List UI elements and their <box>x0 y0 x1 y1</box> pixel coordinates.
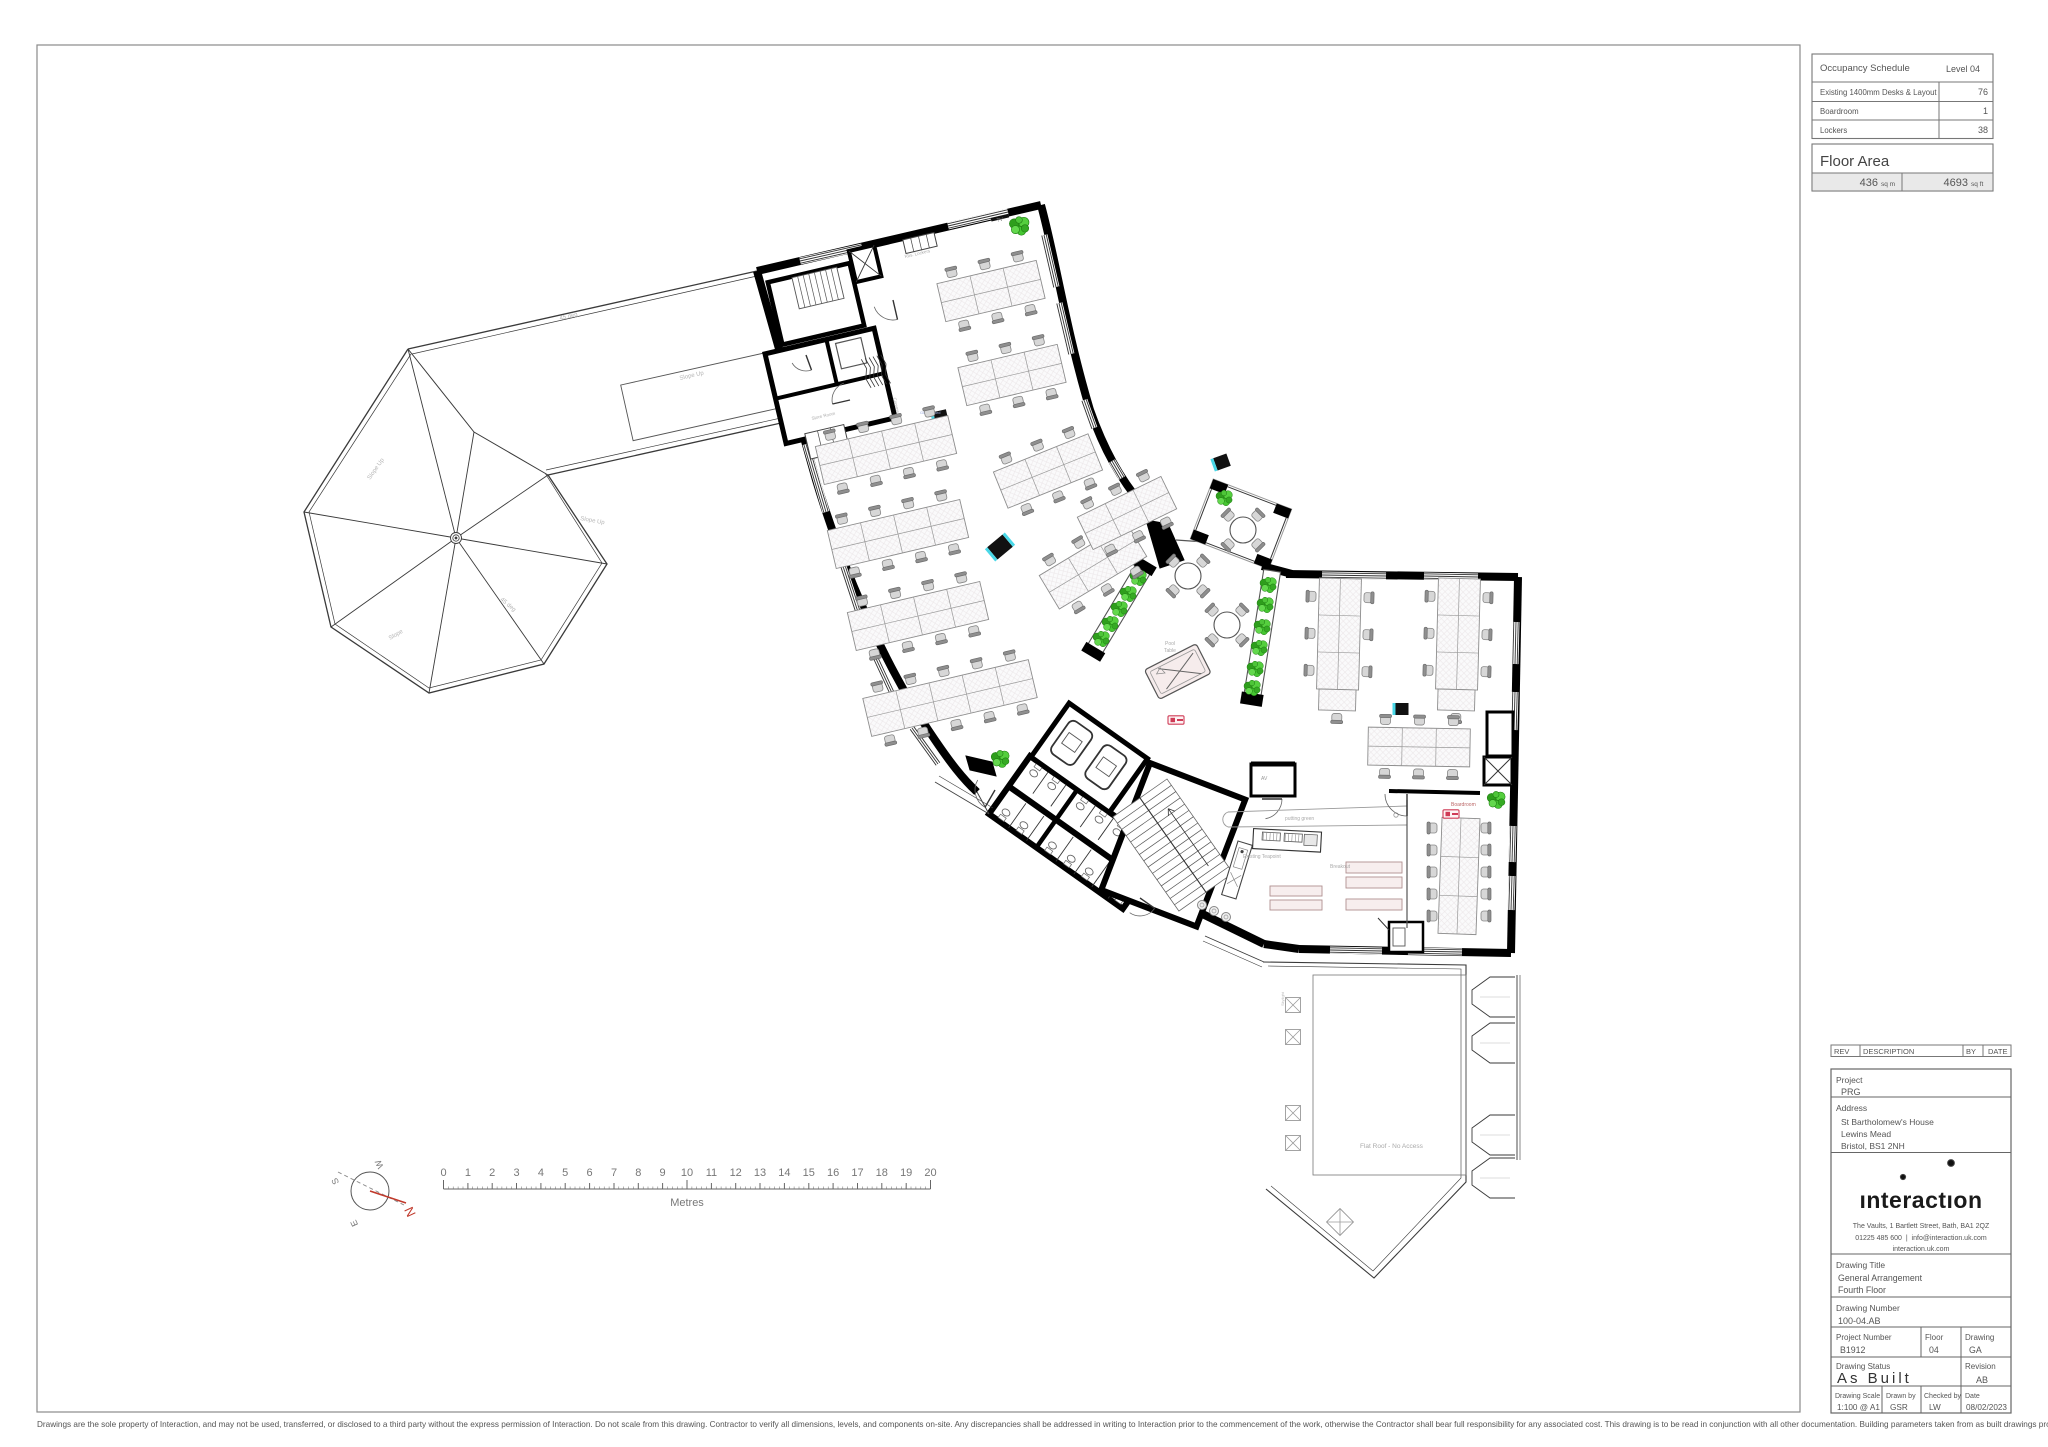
svg-text:sq m: sq m <box>1881 181 1895 188</box>
svg-text:ınteractıon: ınteractıon <box>1859 1187 1982 1213</box>
svg-text:01225 485 600 | info@interac: 01225 485 600 | info@interaction.uk.com <box>1855 1235 1987 1242</box>
svg-text:Table: Table <box>1164 648 1176 654</box>
svg-text:18: 18 <box>876 1167 888 1179</box>
svg-text:Project: Project <box>1836 1075 1863 1085</box>
svg-text:4: 4 <box>538 1167 544 1179</box>
svg-text:The Vaults, 1 Bartlett Street,: The Vaults, 1 Bartlett Street, Bath, BA1… <box>1853 1223 1990 1230</box>
svg-text:9: 9 <box>660 1167 666 1179</box>
svg-text:Occupancy Schedule: Occupancy Schedule <box>1820 63 1910 74</box>
svg-text:General Arrangement: General Arrangement <box>1838 1273 1923 1283</box>
svg-text:17: 17 <box>851 1167 863 1179</box>
svg-text:0: 0 <box>440 1167 446 1179</box>
svg-text:Date: Date <box>1965 1393 1980 1400</box>
svg-text:436: 436 <box>1860 177 1878 189</box>
svg-text:Drawings are the sole property: Drawings are the sole property of Intera… <box>37 1420 2048 1429</box>
svg-text:sq ft: sq ft <box>1971 181 1983 188</box>
svg-text:As Built: As Built <box>1837 1370 1912 1387</box>
svg-text:15: 15 <box>803 1167 815 1179</box>
svg-text:Level 04: Level 04 <box>1946 64 1980 74</box>
svg-text:38: 38 <box>1978 125 1988 135</box>
svg-text:08/02/2023: 08/02/2023 <box>1966 1403 2007 1412</box>
svg-text:Breakout: Breakout <box>1330 864 1351 870</box>
svg-text:Revision: Revision <box>1965 1362 1996 1371</box>
svg-text:Floor: Floor <box>1925 1333 1944 1342</box>
svg-text:Drawing Number: Drawing Number <box>1836 1303 1900 1313</box>
svg-text:13: 13 <box>754 1167 766 1179</box>
svg-text:11: 11 <box>706 1167 717 1179</box>
svg-text:Floor Area: Floor Area <box>1820 153 1890 170</box>
svg-text:6: 6 <box>587 1167 593 1179</box>
svg-text:3: 3 <box>513 1167 519 1179</box>
svg-text:GSR: GSR <box>1890 1403 1908 1412</box>
svg-text:12: 12 <box>730 1167 742 1179</box>
svg-text:Drawing Scale: Drawing Scale <box>1835 1393 1880 1400</box>
svg-text:04: 04 <box>1929 1345 1939 1355</box>
svg-text:GA: GA <box>1969 1345 1982 1355</box>
svg-text:LW: LW <box>1929 1403 1941 1412</box>
svg-text:Boardroom: Boardroom <box>1451 802 1476 808</box>
svg-text:PRG: PRG <box>1841 1087 1861 1097</box>
svg-text:putting green: putting green <box>1285 816 1314 822</box>
svg-text:4693: 4693 <box>1944 177 1968 189</box>
svg-text:AB: AB <box>1976 1375 1988 1385</box>
svg-text:Checked by: Checked by <box>1924 1393 1961 1400</box>
svg-text:Pool: Pool <box>1165 641 1175 647</box>
svg-text:1: 1 <box>465 1167 471 1179</box>
svg-text:Lockers: Lockers <box>1820 126 1847 135</box>
svg-text:16: 16 <box>827 1167 839 1179</box>
svg-text:8: 8 <box>635 1167 641 1179</box>
svg-text:14: 14 <box>778 1167 790 1179</box>
svg-text:Drawn by: Drawn by <box>1886 1393 1916 1400</box>
svg-text:Metres: Metres <box>670 1197 704 1209</box>
svg-text:Lewins Mead: Lewins Mead <box>1841 1129 1891 1139</box>
svg-text:interaction.uk.com: interaction.uk.com <box>1893 1246 1950 1253</box>
svg-text:DESCRIPTION: DESCRIPTION <box>1863 1047 1914 1056</box>
svg-text:BY: BY <box>1966 1047 1976 1056</box>
svg-text:2: 2 <box>489 1167 495 1179</box>
svg-text:Fourth Floor: Fourth Floor <box>1838 1285 1886 1295</box>
svg-text:Existing Teapoint: Existing Teapoint <box>1243 854 1281 860</box>
svg-text:Drawing Title: Drawing Title <box>1836 1260 1885 1270</box>
svg-text:REV: REV <box>1834 1047 1849 1056</box>
svg-text:5: 5 <box>562 1167 568 1179</box>
svg-text:7: 7 <box>611 1167 617 1179</box>
svg-text:Address: Address <box>1836 1103 1867 1113</box>
svg-text:Bristol, BS1 2NH: Bristol, BS1 2NH <box>1841 1141 1905 1151</box>
svg-text:Boardroom: Boardroom <box>1820 107 1859 116</box>
svg-text:Flat Roof - No Access: Flat Roof - No Access <box>1360 1143 1424 1150</box>
svg-text:20: 20 <box>924 1167 936 1179</box>
svg-text:St Bartholomew's House: St Bartholomew's House <box>1841 1117 1934 1127</box>
svg-text:19: 19 <box>900 1167 912 1179</box>
svg-text:Skylight: Skylight <box>1280 991 1285 1006</box>
svg-text:76: 76 <box>1978 87 1988 97</box>
svg-text:100-04.AB: 100-04.AB <box>1838 1316 1881 1326</box>
svg-text:B1912: B1912 <box>1840 1345 1866 1355</box>
svg-text:DATE: DATE <box>1988 1047 2007 1056</box>
svg-text:1: 1 <box>1983 106 1988 116</box>
svg-text:Project Number: Project Number <box>1836 1333 1892 1342</box>
svg-text:Existing 1400mm Desks & Layout: Existing 1400mm Desks & Layout <box>1820 88 1937 97</box>
svg-text:Drawing: Drawing <box>1965 1333 1994 1342</box>
svg-text:10: 10 <box>681 1167 693 1179</box>
svg-text:1:100 @ A1: 1:100 @ A1 <box>1837 1403 1880 1412</box>
svg-text:AV: AV <box>1261 776 1268 782</box>
